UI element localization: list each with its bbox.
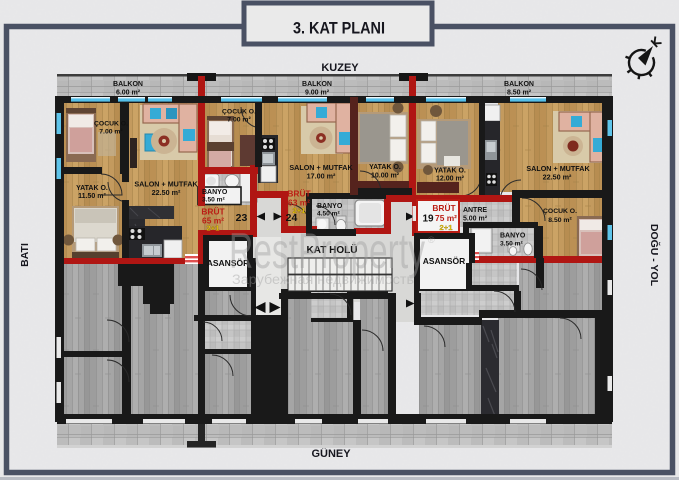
svg-text:®: ® bbox=[428, 235, 435, 245]
svg-text:BATI: BATI bbox=[19, 243, 31, 267]
svg-text:ÇOCUK O.: ÇOCUK O. bbox=[94, 121, 128, 128]
svg-text:KUZEY: KUZEY bbox=[321, 62, 359, 74]
svg-text:2+1: 2+1 bbox=[440, 223, 454, 232]
svg-text:4.50 m²: 4.50 m² bbox=[317, 211, 341, 218]
svg-text:BALKON: BALKON bbox=[113, 81, 143, 88]
svg-text:11.50 m²: 11.50 m² bbox=[78, 193, 106, 200]
svg-text:BRÜT: BRÜT bbox=[432, 203, 456, 213]
svg-text:10.00 m²: 10.00 m² bbox=[371, 173, 400, 180]
svg-text:BANYO: BANYO bbox=[500, 233, 526, 240]
svg-text:Зарубежная недвижимость: Зарубежная недвижимость bbox=[232, 272, 414, 287]
svg-text:17.00 m²: 17.00 m² bbox=[307, 172, 336, 181]
svg-text:22.50 m²: 22.50 m² bbox=[152, 188, 181, 197]
svg-text:22.50 m²: 22.50 m² bbox=[543, 173, 572, 182]
svg-text:RestProperty: RestProperty bbox=[229, 223, 425, 279]
svg-text:3.50 m²: 3.50 m² bbox=[500, 241, 524, 248]
svg-text:75 m²: 75 m² bbox=[435, 213, 457, 223]
svg-text:7.00 m²: 7.00 m² bbox=[227, 117, 251, 124]
svg-text:5.00 m²: 5.00 m² bbox=[463, 216, 488, 223]
svg-text:BANYO: BANYO bbox=[317, 203, 343, 210]
svg-text:DOĞU - YOL: DOĞU - YOL bbox=[648, 224, 661, 287]
svg-text:YATAK O.: YATAK O. bbox=[369, 164, 401, 171]
svg-text:ANTRE: ANTRE bbox=[463, 207, 487, 214]
svg-text:3. KAT PLANI: 3. KAT PLANI bbox=[293, 20, 385, 38]
svg-text:YATAK O.: YATAK O. bbox=[76, 185, 108, 192]
svg-text:ÇOCUK O.: ÇOCUK O. bbox=[543, 208, 577, 215]
svg-text:7.00 m²: 7.00 m² bbox=[99, 129, 123, 136]
svg-text:8.50 m²: 8.50 m² bbox=[548, 217, 572, 224]
svg-text:9.00 m²: 9.00 m² bbox=[305, 90, 330, 97]
svg-text:GÜNEY: GÜNEY bbox=[311, 447, 351, 460]
svg-text:ASANSÖR: ASANSÖR bbox=[423, 256, 466, 266]
svg-text:2+1: 2+1 bbox=[207, 224, 221, 233]
svg-text:YATAK O.: YATAK O. bbox=[434, 168, 466, 175]
svg-text:BALKON: BALKON bbox=[302, 81, 332, 88]
svg-text:BANYO: BANYO bbox=[202, 189, 228, 196]
svg-text:12.00 m²: 12.00 m² bbox=[436, 176, 465, 183]
svg-text:3.50 m²: 3.50 m² bbox=[202, 197, 226, 204]
svg-text:8.50 m²: 8.50 m² bbox=[507, 90, 532, 97]
svg-text:ÇOCUK O.: ÇOCUK O. bbox=[222, 109, 256, 116]
svg-text:6.00 m²: 6.00 m² bbox=[116, 90, 141, 97]
svg-text:BALKON: BALKON bbox=[504, 81, 534, 88]
